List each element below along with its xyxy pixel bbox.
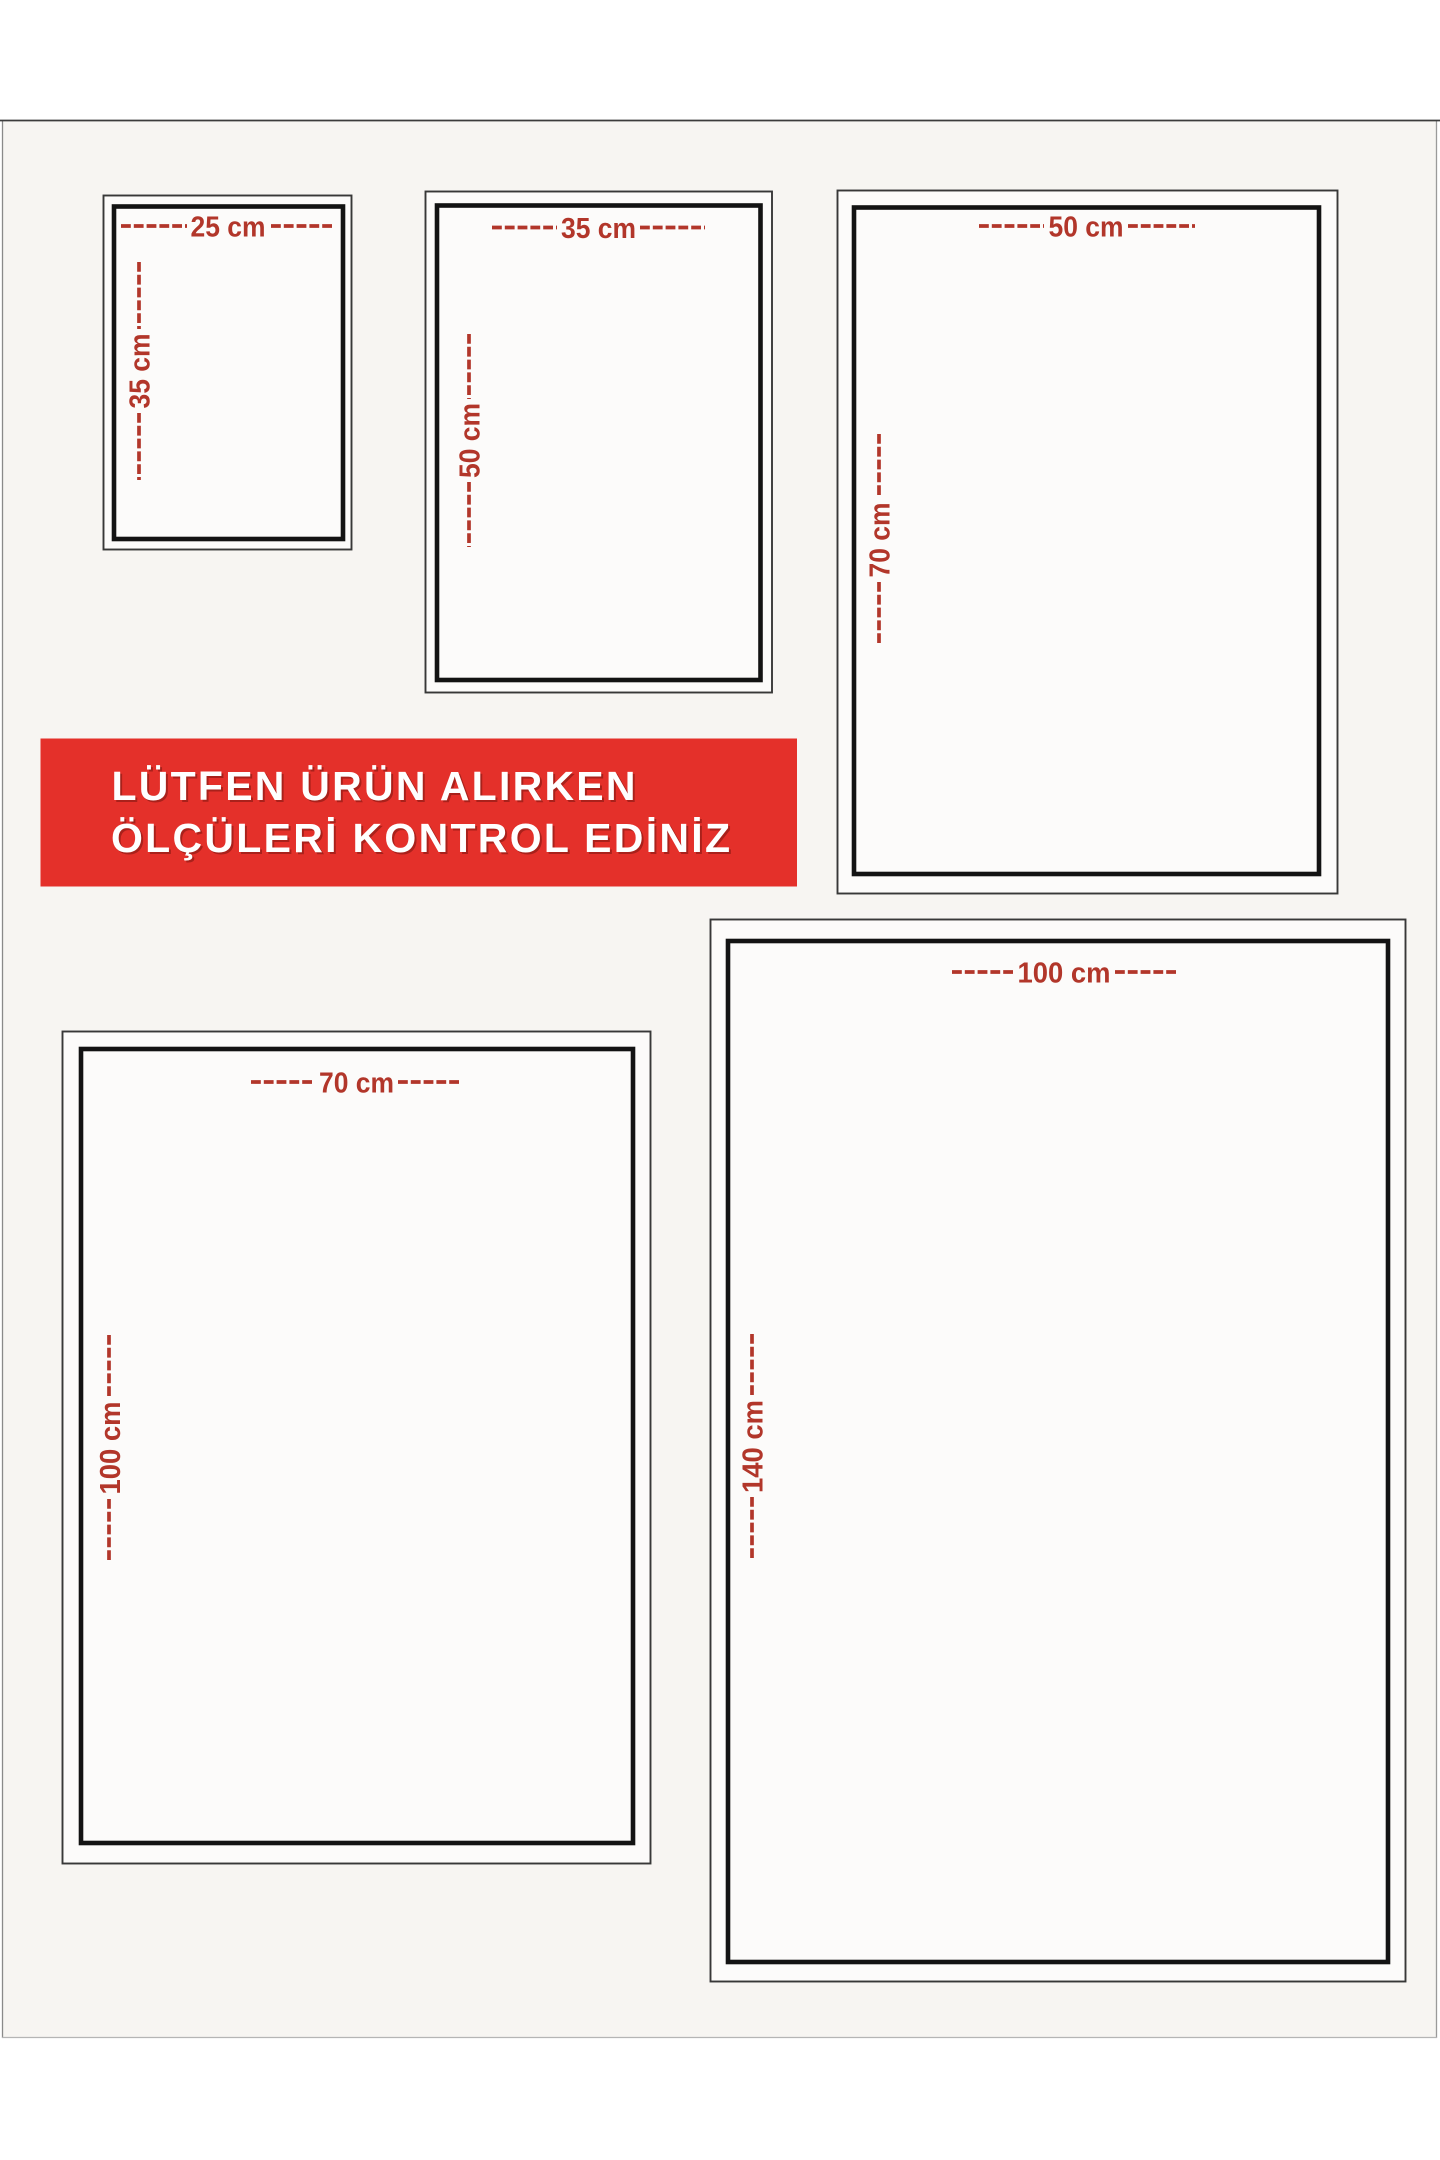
svg-text:100 cm: 100 cm [1018,958,1111,990]
svg-text:50 cm: 50 cm [455,403,487,478]
svg-text:ÖLÇÜLERİ KONTROL EDİNİZ: ÖLÇÜLERİ KONTROL EDİNİZ [111,815,730,861]
svg-text:35 cm: 35 cm [561,213,636,245]
svg-text:LÜTFEN ÜRÜN ALIRKEN: LÜTFEN ÜRÜN ALIRKEN [112,763,636,809]
svg-text:50 cm: 50 cm [1049,212,1124,244]
svg-text:70 cm: 70 cm [865,503,897,578]
svg-text:140 cm: 140 cm [738,1400,770,1493]
svg-text:35 cm: 35 cm [125,334,157,409]
svg-text:25 cm: 25 cm [191,212,266,244]
svg-text:70 cm: 70 cm [319,1068,394,1100]
svg-text:100 cm: 100 cm [95,1402,127,1495]
